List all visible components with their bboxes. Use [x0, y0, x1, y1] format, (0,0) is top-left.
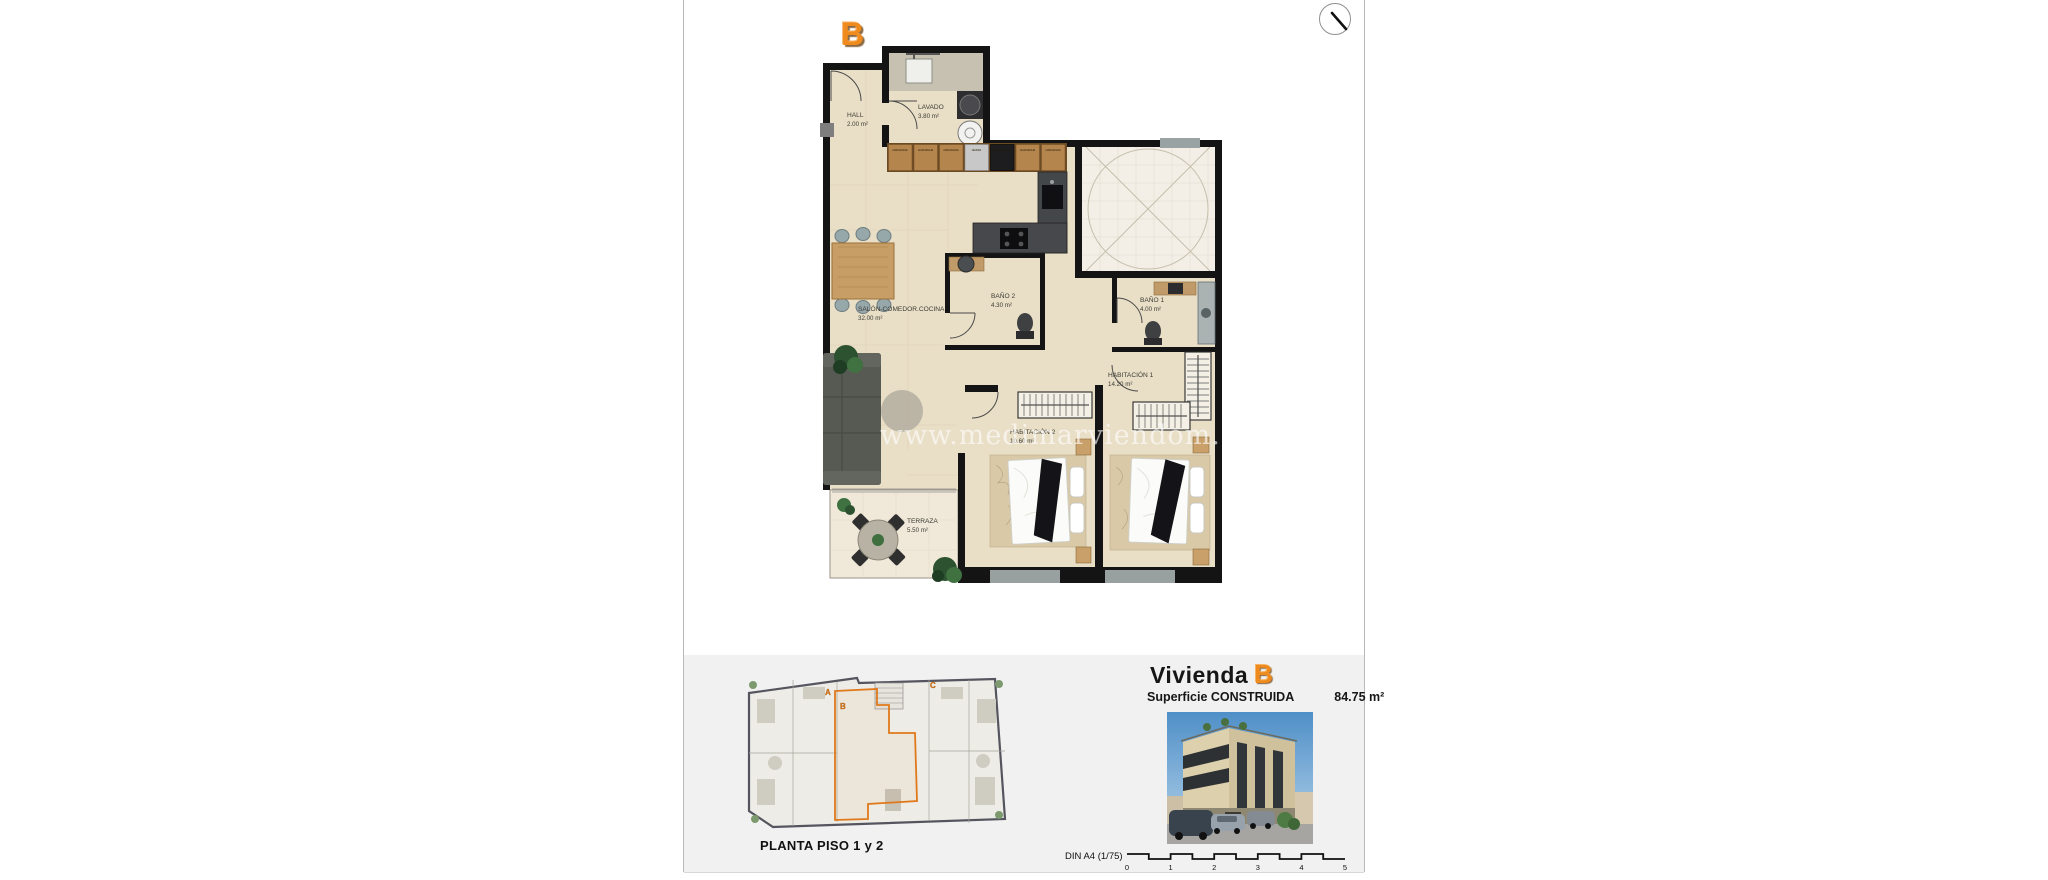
scale-bar-line [1127, 854, 1345, 859]
scale-tick: 0 [1125, 863, 1129, 872]
label-bano1: BAÑO 1 [1140, 295, 1165, 304]
bed-habitacion1 [1110, 437, 1210, 565]
area-salon: 32.00 m² [858, 315, 882, 322]
kitchen-cabinets: ALMACENAJE ALMACENAJE ALMACENAJE NEVERA … [887, 143, 1067, 172]
cabinet-label: ALMACENAJE [1020, 149, 1036, 152]
north-orientation-icon[interactable] [1318, 2, 1352, 36]
wardrobe-hab2 [1018, 392, 1092, 418]
label-hall: HALL [847, 112, 864, 119]
label-lavado: LAVADO [918, 104, 944, 111]
label-habitacion1: HABITACIÓN 1 [1108, 370, 1154, 379]
scale-label: DIN A4 (1/75) [1065, 851, 1123, 862]
area-lavado: 3.80 m² [918, 113, 939, 120]
main-floor-plan: ALMACENAJE ALMACENAJE ALMACENAJE NEVERA … [818, 35, 1228, 590]
building-photo [1167, 712, 1313, 844]
sofa [823, 353, 881, 485]
dining-table [832, 228, 894, 314]
unit-title-prefix: Vivienda [1150, 662, 1248, 688]
scale-tick: 1 [1169, 863, 1173, 872]
area-hall: 2.00 m² [847, 121, 868, 128]
area-habitacion1: 14.20 m² [1108, 381, 1132, 388]
unit-title: ViviendaB [1150, 659, 1273, 690]
area-terraza: 5.50 m² [907, 527, 928, 534]
area-bano1: 4.00 m² [1140, 306, 1161, 313]
cabinet-label: ALMACENAJE [1045, 149, 1061, 152]
surface-label: Superficie CONSTRUIDA [1147, 690, 1294, 704]
unit-title-letter: B [1254, 659, 1273, 689]
label-terraza: TERRAZA [907, 518, 938, 525]
scale-tick: 2 [1212, 863, 1216, 872]
patio-lightwell [1082, 147, 1215, 271]
cabinet-label: NEVERA [972, 149, 982, 152]
scale-tick: 3 [1256, 863, 1260, 872]
scale-tick: 5 [1343, 863, 1347, 872]
key-letter-b: B [840, 702, 846, 711]
cabinet-label: ALMACENAJE [918, 149, 934, 152]
cabinet-label: HORNO MICRO [994, 150, 1011, 152]
cabinet-label: ALMACENAJE [892, 149, 908, 152]
surface-value: 84.75 m² [1334, 690, 1384, 704]
watermark: www.medimarviendom.com [880, 420, 1281, 451]
key-letter-c: C [930, 681, 936, 690]
scale-bar: DIN A4 (1/75) 0 1 2 3 4 5 [1059, 846, 1359, 874]
key-letter-a: A [825, 688, 831, 697]
cabinet-label: ALMACENAJE [943, 149, 959, 152]
terrace-table [851, 513, 906, 567]
surface-row: Superficie CONSTRUIDA 84.75 m² [1147, 690, 1384, 704]
key-plan: A B C [737, 671, 1025, 836]
key-plan-caption: PLANTA PISO 1 y 2 [760, 838, 884, 853]
label-salon: SALÓN-COMEDOR.COCINA [858, 304, 945, 313]
label-bano2: BAÑO 2 [991, 291, 1016, 300]
bed-habitacion2 [990, 439, 1091, 563]
brochure-canvas: B [0, 0, 2048, 880]
scale-tick: 4 [1299, 863, 1303, 872]
area-bano2: 4.30 m² [991, 302, 1012, 309]
